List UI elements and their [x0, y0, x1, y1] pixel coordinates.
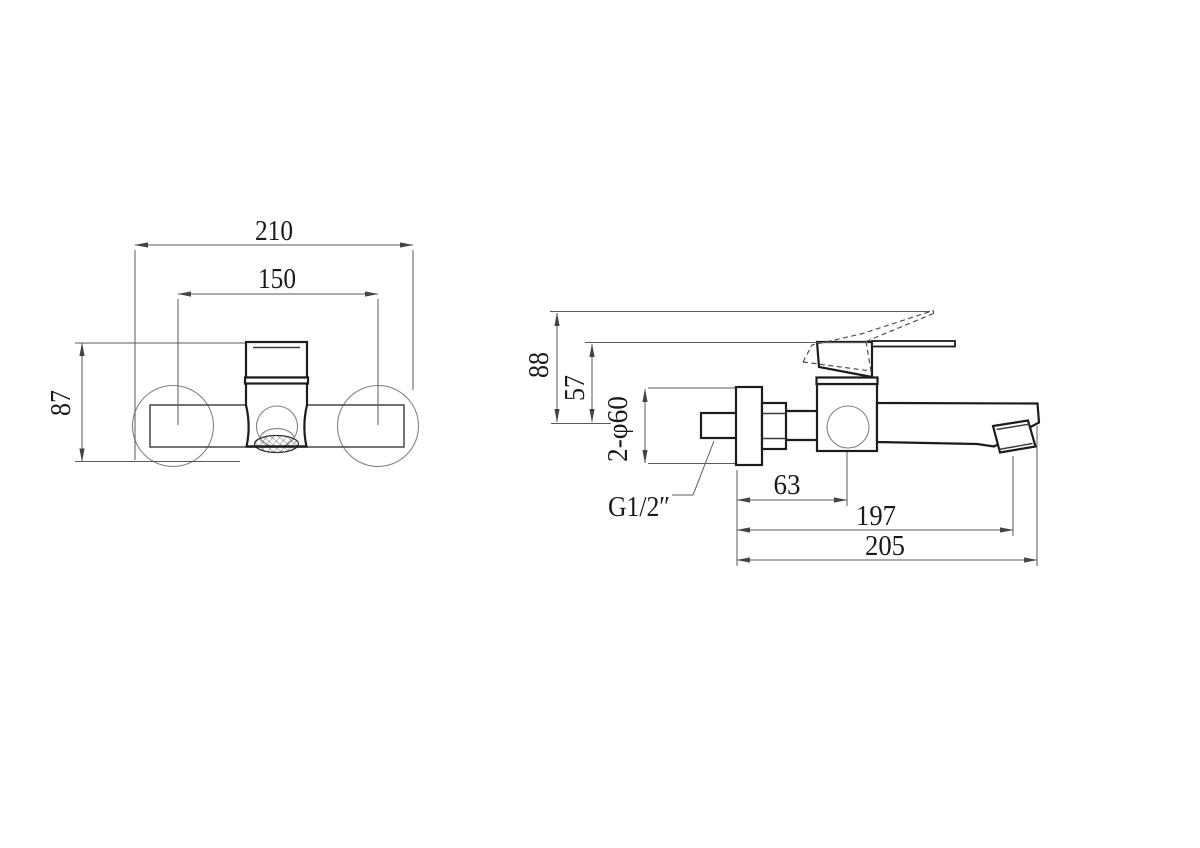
left-flange-circle — [133, 386, 214, 467]
inlet-fitting — [701, 413, 737, 438]
dim-63: 63 — [737, 452, 847, 566]
connector-pipe — [786, 411, 818, 440]
thread-label: G1/2″ — [608, 492, 670, 523]
valve-body-side — [817, 384, 877, 451]
dim-88-label: 88 — [524, 352, 555, 378]
drawing-canvas: 210 150 87 — [0, 0, 1200, 848]
dim-210-label: 210 — [255, 216, 293, 247]
dim-flange-label: 2-φ60 — [603, 396, 634, 462]
dim-87-label: 87 — [46, 390, 77, 416]
technical-drawing: 210 150 87 — [0, 0, 1200, 848]
side-view: 88 57 2-φ60 G1/2″ 63 — [524, 311, 1039, 567]
front-view: 210 150 87 — [46, 216, 419, 467]
dim-57-label: 57 — [560, 375, 591, 401]
dim-87: 87 — [46, 343, 245, 462]
hex-nut — [762, 403, 786, 449]
bonnet-band — [245, 378, 308, 384]
spout-outlet — [993, 421, 1036, 453]
dim-150-label: 150 — [258, 264, 296, 295]
handle-body — [817, 342, 872, 377]
dim-197-label: 197 — [856, 501, 896, 532]
aerator-mesh — [255, 436, 299, 453]
handle-lever — [872, 341, 955, 347]
dim-63-label: 63 — [774, 470, 801, 501]
bonnet-band-side — [817, 378, 878, 385]
dim-205-label: 205 — [865, 531, 905, 562]
wall-flange — [736, 387, 762, 465]
